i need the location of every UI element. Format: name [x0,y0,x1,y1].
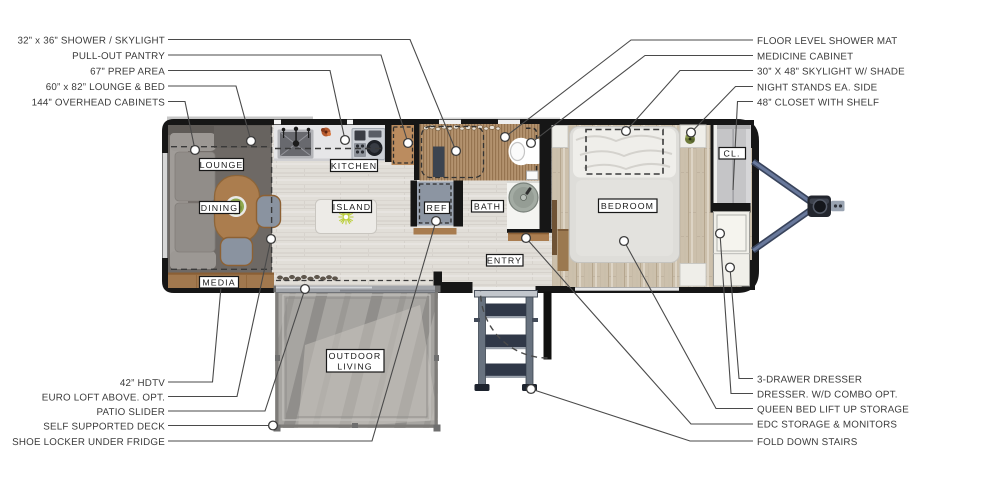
svg-text:ENTRY: ENTRY [487,256,522,266]
svg-text:SELF SUPPORTED DECK: SELF SUPPORTED DECK [43,422,165,433]
svg-text:ISLAND: ISLAND [333,202,371,212]
svg-text:EURO LOFT ABOVE. OPT.: EURO LOFT ABOVE. OPT. [42,393,165,404]
svg-text:SHOE LOCKER UNDER FRIDGE: SHOE LOCKER UNDER FRIDGE [12,437,165,448]
svg-text:LIVING: LIVING [337,361,372,371]
svg-text:PATIO SLIDER: PATIO SLIDER [97,407,165,418]
svg-text:MEDICINE CABINET: MEDICINE CABINET [757,52,853,63]
svg-text:48” CLOSET WITH SHELF: 48” CLOSET WITH SHELF [757,98,879,109]
svg-text:FLOOR LEVEL SHOWER MAT: FLOOR LEVEL SHOWER MAT [757,36,898,47]
svg-text:67” PREP AREA: 67” PREP AREA [90,67,165,78]
svg-text:30” X 48” SKYLIGHT W/ SHADE: 30” X 48” SKYLIGHT W/ SHADE [757,67,905,78]
svg-text:60” x 82” LOUNGE & BED: 60” x 82” LOUNGE & BED [46,82,165,93]
svg-text:EDC STORAGE & MONITORS: EDC STORAGE & MONITORS [757,420,897,431]
svg-text:FOLD DOWN STAIRS: FOLD DOWN STAIRS [757,437,858,448]
svg-text:PULL-OUT PANTRY: PULL-OUT PANTRY [72,51,165,62]
svg-text:42” HDTV: 42” HDTV [120,378,165,389]
svg-text:KITCHEN: KITCHEN [331,161,377,171]
svg-text:REF: REF [427,203,448,213]
svg-text:BEDROOM: BEDROOM [601,201,654,211]
svg-text:144” OVERHEAD CABINETS: 144” OVERHEAD CABINETS [32,98,166,109]
svg-text:NIGHT STANDS EA. SIDE: NIGHT STANDS EA. SIDE [757,83,878,94]
svg-text:CL.: CL. [724,149,741,159]
svg-text:BATH: BATH [474,202,501,212]
svg-text:QUEEN BED LIFT UP STORAGE: QUEEN BED LIFT UP STORAGE [757,405,909,416]
svg-text:DINING: DINING [201,203,238,213]
svg-text:MEDIA: MEDIA [202,278,235,288]
svg-text:DRESSER. W/D COMBO OPT.: DRESSER. W/D COMBO OPT. [757,390,898,401]
svg-text:LOUNGE: LOUNGE [200,160,244,170]
svg-text:3-DRAWER DRESSER: 3-DRAWER DRESSER [757,375,862,386]
svg-text:OUTDOOR: OUTDOOR [329,351,382,361]
svg-text:32” x 36” SHOWER / SKYLIGHT: 32” x 36” SHOWER / SKYLIGHT [18,36,166,47]
